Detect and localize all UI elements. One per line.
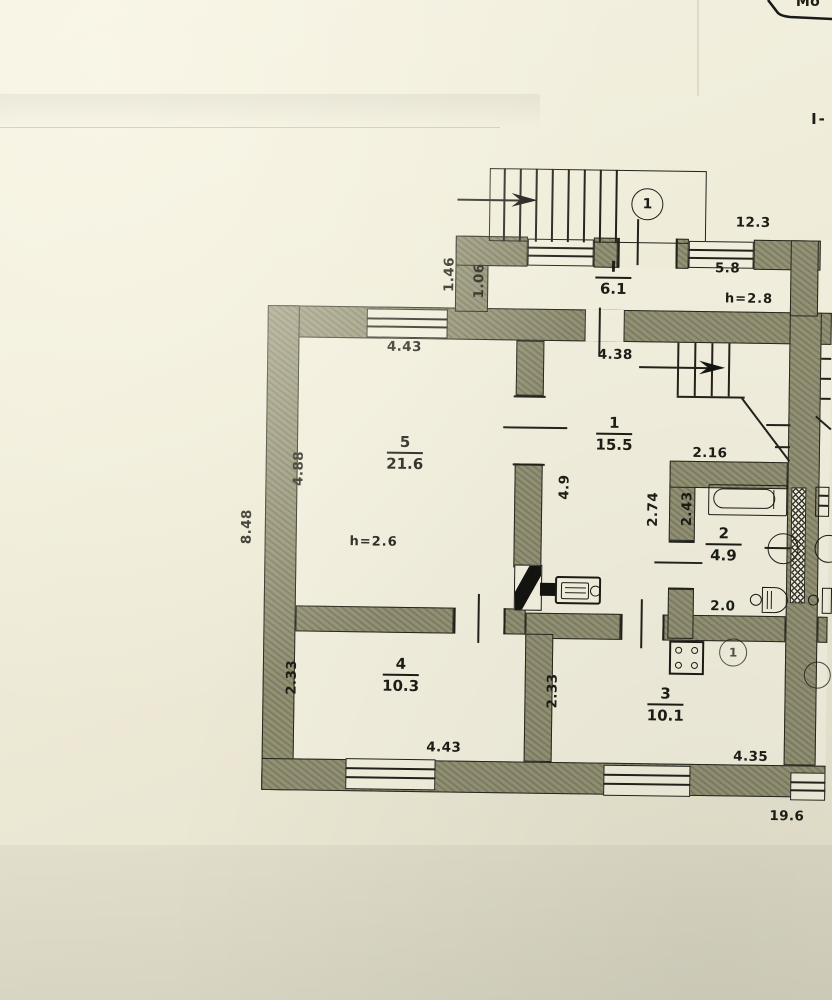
stove-niche: [514, 564, 543, 610]
wall-vestibule-divider: [790, 240, 819, 316]
door-vestibule-room1: [584, 309, 624, 342]
dim-bottom-overall: 19.6: [763, 808, 811, 825]
toilet-cistern-icon: [750, 594, 762, 606]
wall-left: [261, 305, 300, 790]
winder-tread: [766, 424, 790, 426]
floor-plan: 1: [0, 0, 832, 1000]
boiler-stub: [540, 583, 556, 596]
window-vestibule-left: [528, 239, 594, 267]
dim-room3-bottom: 4.35: [727, 748, 775, 765]
porch-outline: [489, 168, 707, 244]
dim-room5-top: 4.43: [380, 339, 428, 356]
stove-symbol-icon: [515, 565, 542, 609]
dim-room1-left: 4.9: [556, 465, 573, 509]
dim-room2-left: 2.43: [679, 487, 696, 531]
neighbor-stair-tread: [821, 398, 831, 400]
room-label-1: 1 15.5: [589, 414, 640, 453]
wall-room5-room1-b: [513, 463, 542, 567]
dim-room2-bottom: 2.0: [699, 598, 747, 615]
dim-room2-top: 2.16: [686, 445, 734, 462]
room-label-3: 3 10.1: [640, 685, 691, 724]
bathtub-icon: [708, 484, 787, 516]
window-room4: [345, 758, 435, 790]
dim-room4-bottom: 4.43: [420, 739, 468, 756]
dim-room1-right: 2.74: [645, 487, 662, 531]
window-neighbor: [790, 772, 825, 800]
room-label-5: 5 21.6: [380, 434, 431, 473]
section-mark: I-: [804, 110, 832, 128]
room-label-2: 2 4.9: [698, 525, 749, 564]
meter-number: 1: [729, 645, 738, 659]
wall-room2-left-b: [667, 588, 694, 639]
room-label-4: 4 10.3: [376, 656, 427, 695]
winder-tread: [775, 446, 790, 448]
neighbor-meter-circle: [804, 661, 831, 688]
door-jamb: [669, 541, 695, 543]
dim-left-overall: 8.48: [239, 505, 256, 549]
entrance-marker-number: 1: [642, 196, 652, 212]
gas-stove-icon: [669, 641, 704, 675]
dim-room4-left: 2.33: [283, 655, 300, 699]
scanned-floor-plan-page: Мо I-: [0, 0, 832, 1000]
dim-room3-left: 2.33: [544, 669, 561, 713]
window-room5: [366, 308, 447, 338]
wall-neighbor-mid: [817, 617, 827, 643]
dim-room1-top: 4.38: [591, 346, 639, 363]
boiler-icon: [555, 576, 601, 605]
neighbor-stair-tread: [821, 358, 831, 360]
window-room3: [603, 765, 690, 797]
room-label-vestibule: I 6.1: [588, 258, 639, 297]
neighbor-toilet-body: [822, 588, 832, 614]
wall-mid-pier: [503, 608, 525, 634]
stamp-outline: [740, 0, 832, 55]
dim-porch-outer: 1.46: [441, 252, 458, 296]
wall-mid-left: [295, 605, 453, 633]
neighbor-bathtub-icon: [815, 487, 829, 517]
door-jamb: [668, 588, 694, 590]
dim-vestibule-width: 5.8: [703, 260, 751, 277]
wall-room5-room1-a: [516, 340, 545, 395]
note-vestibule-height: h=2.8: [713, 291, 785, 307]
dim-top-right: 12.3: [729, 214, 777, 231]
neighbor-stair-tread: [821, 378, 831, 380]
note-room5-height: h=2.6: [338, 534, 410, 550]
dim-porch-inner: 1.06: [471, 259, 488, 303]
dim-room5-left: 4.88: [290, 446, 307, 490]
